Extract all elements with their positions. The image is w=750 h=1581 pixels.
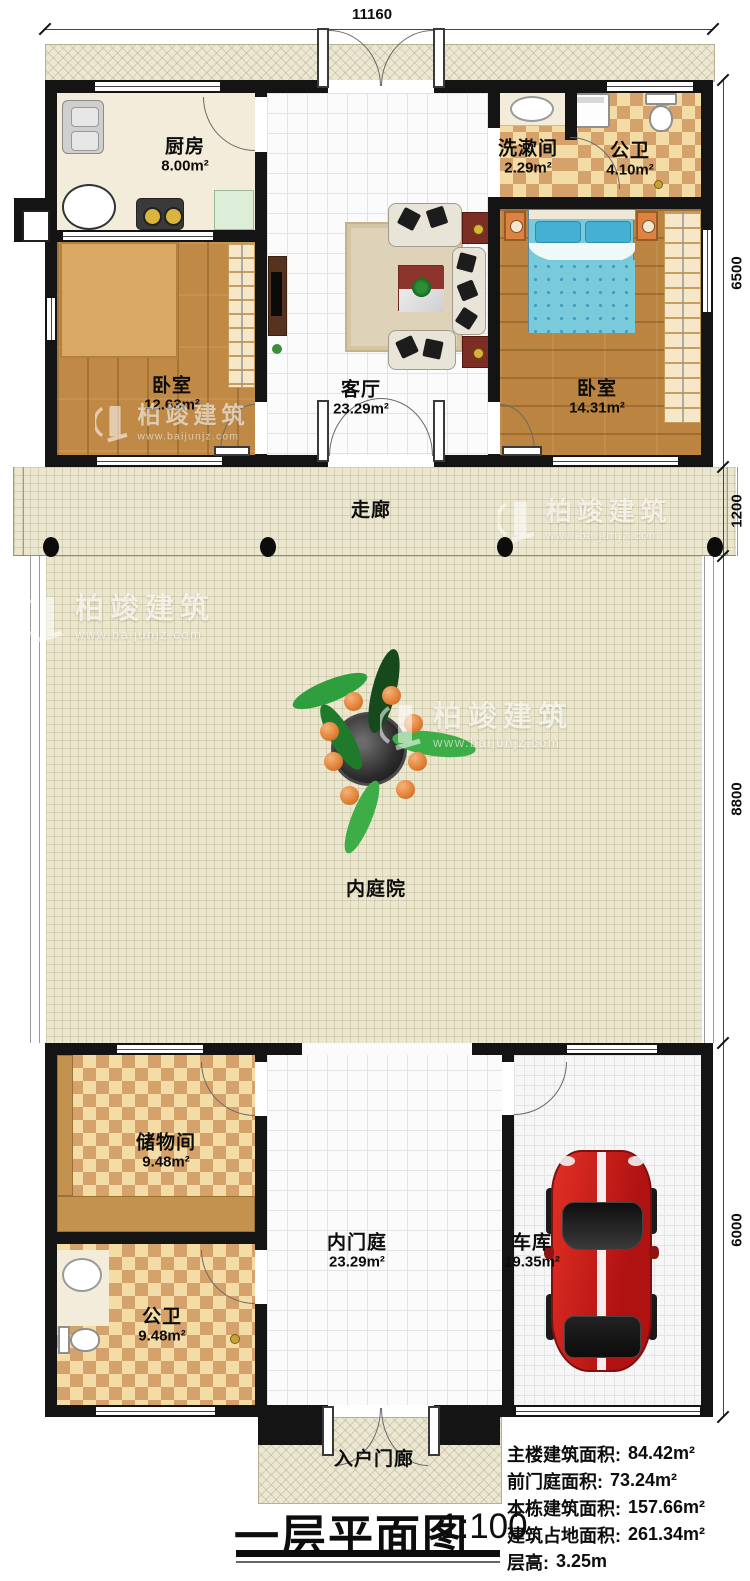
floor-plan-canvas: 11160 <box>0 0 750 1581</box>
room-area: 2.29m² <box>498 159 558 176</box>
room-name: 车库 <box>504 1233 560 1253</box>
exterior-stub-wall <box>14 198 22 242</box>
plant-fruit <box>320 722 339 741</box>
window <box>97 455 222 467</box>
title-underline-thick <box>236 1550 500 1557</box>
wall <box>565 93 577 140</box>
column <box>43 537 59 557</box>
lamp <box>510 220 523 233</box>
exterior-box <box>22 210 50 242</box>
stat-line: 前门庭面积: 73.24m² <box>507 1467 705 1494</box>
room-name: 内门庭 <box>327 1233 387 1253</box>
car-rear-window <box>564 1316 641 1358</box>
door-leaf <box>433 28 445 88</box>
bath-sink <box>62 1258 102 1292</box>
room-label-living: 客厅 23.29m² <box>333 380 389 417</box>
wall <box>701 1043 713 1417</box>
stat-value: 3.25m <box>556 1551 607 1572</box>
corridor-edge <box>13 467 24 556</box>
door-opening <box>488 402 500 454</box>
room-area: 9.48m² <box>136 1153 196 1170</box>
room-area: 23.29m² <box>327 1253 387 1270</box>
door-opening <box>328 455 434 467</box>
room-name: 客厅 <box>333 380 389 400</box>
interior-window <box>63 230 213 242</box>
sofa-pillow <box>422 338 443 359</box>
coffee-table <box>398 265 443 311</box>
bed-pillow <box>535 221 581 243</box>
car-windshield <box>562 1202 643 1250</box>
stat-line: 层高: 3.25m <box>507 1548 705 1575</box>
stat-line: 本栋建筑面积: 157.66m² <box>507 1494 705 1521</box>
washing-machine <box>572 93 610 128</box>
room-area: 4.10m² <box>606 161 654 178</box>
door-opening <box>255 1062 267 1116</box>
toilet-top-bowl <box>649 105 673 132</box>
title-underline-thin <box>236 1561 500 1563</box>
plant-fruit <box>404 714 423 733</box>
dim-right-6500: 6500 <box>729 256 746 289</box>
dim-top-line <box>45 29 713 30</box>
plant-fruit <box>340 786 359 805</box>
door-leaf <box>502 446 542 456</box>
door-leaf <box>322 1406 334 1456</box>
burner <box>143 207 162 226</box>
car-mirror <box>649 1246 659 1259</box>
bed-single <box>60 242 178 358</box>
room-label-storage: 储物间 9.48m² <box>136 1133 196 1170</box>
column <box>260 537 276 557</box>
wardrobe-right <box>664 211 701 423</box>
stat-label: 本栋建筑面积: <box>507 1495 621 1521</box>
nightstand <box>504 211 526 241</box>
window <box>701 230 713 312</box>
door-arc <box>329 30 381 86</box>
side-table-dot <box>473 348 484 359</box>
door-opening <box>255 402 267 454</box>
toilet-top <box>645 93 677 105</box>
wardrobe-left <box>228 242 255 388</box>
room-name: 卧室 <box>144 376 200 396</box>
room-name: 厨房 <box>161 137 209 157</box>
storage-shelf-side <box>57 1055 73 1196</box>
floor-drain <box>230 1334 240 1344</box>
window <box>567 1043 657 1055</box>
stat-label: 主楼建筑面积: <box>507 1441 621 1467</box>
wall <box>45 1043 57 1417</box>
plant-fruit <box>408 752 427 771</box>
kitchen-sink <box>62 100 104 154</box>
window <box>607 80 693 93</box>
window <box>553 455 678 467</box>
toilet-bottom-tank <box>58 1326 70 1354</box>
room-area: 12.63m² <box>144 396 200 413</box>
washroom-sink <box>510 96 554 122</box>
room-label-inner-court: 内门庭 23.29m² <box>327 1233 387 1270</box>
door-leaf <box>214 446 250 456</box>
door-leaf <box>433 400 445 462</box>
stat-value: 157.66m² <box>628 1497 705 1518</box>
table-plant <box>412 278 431 297</box>
door-leaf <box>317 400 329 462</box>
door-leaf <box>317 28 329 88</box>
room-label-courtyard: 内庭院 <box>346 880 406 900</box>
room-area: 9.48m² <box>138 1327 186 1344</box>
corridor-line <box>14 555 736 556</box>
room-name: 入户门廊 <box>334 1450 414 1470</box>
window <box>95 80 220 93</box>
room-label-bedroom-right: 卧室 14.31m² <box>569 379 625 416</box>
room-area: 23.29m² <box>333 400 389 417</box>
stat-value: 84.42m² <box>628 1443 695 1464</box>
dim-right-8800: 8800 <box>729 782 746 815</box>
room-label-washroom: 洗漱间 2.29m² <box>498 139 558 176</box>
area-statistics: 主楼建筑面积: 84.42m² 前门庭面积: 73.24m² 本栋建筑面积: 1… <box>507 1440 705 1575</box>
room-name: 卧室 <box>569 379 625 399</box>
kitchen-table <box>62 184 116 230</box>
room-name: 走廊 <box>351 501 391 521</box>
door-opening <box>255 97 267 152</box>
car <box>551 1150 652 1372</box>
wall <box>488 197 713 209</box>
bed-blanket <box>529 260 635 333</box>
bed-headboard <box>529 210 635 220</box>
window <box>117 1043 203 1055</box>
car-headlight <box>559 1156 575 1166</box>
stat-value: 73.24m² <box>610 1470 677 1491</box>
room-area: 8.00m² <box>161 157 209 174</box>
room-label-garage: 车库 19.35m² <box>504 1233 560 1270</box>
sink-bowl <box>71 131 99 151</box>
room-name: 洗漱间 <box>498 139 558 159</box>
tv-screen <box>271 272 282 316</box>
porch-stub-wall <box>434 1417 500 1445</box>
stat-label: 前门庭面积: <box>507 1468 603 1494</box>
room-label-bath-top: 公卫 4.10m² <box>606 141 654 178</box>
column <box>497 537 513 557</box>
plant-fruit <box>382 686 401 705</box>
floor-inner-court <box>267 1050 502 1405</box>
burner <box>164 207 183 226</box>
stat-value: 261.34m² <box>628 1524 705 1545</box>
dim-right-line <box>723 80 724 1417</box>
kitchen-fridge <box>214 190 254 230</box>
door-opening <box>502 1062 514 1115</box>
plant-fruit <box>344 692 363 711</box>
door-opening <box>255 1250 267 1304</box>
room-name: 内庭院 <box>346 880 406 900</box>
stat-label: 层高: <box>507 1549 549 1575</box>
room-name: 储物间 <box>136 1133 196 1153</box>
wall <box>45 1232 267 1244</box>
room-label-bath-bottom: 公卫 9.48m² <box>138 1307 186 1344</box>
window <box>45 298 57 340</box>
room-area: 14.31m² <box>569 399 625 416</box>
sink-bowl <box>71 107 99 127</box>
car-headlight <box>628 1156 644 1166</box>
door-arc <box>381 30 433 86</box>
room-name: 公卫 <box>606 141 654 161</box>
stat-line: 主楼建筑面积: 84.42m² <box>507 1440 705 1467</box>
column <box>707 537 723 557</box>
dim-right-1200: 1200 <box>729 494 746 527</box>
stat-label: 建筑占地面积: <box>507 1522 621 1548</box>
room-label-corridor: 走廊 <box>351 501 391 521</box>
storage-shelf <box>57 1196 255 1232</box>
door-leaf <box>428 1406 440 1456</box>
courtyard-edge <box>704 556 714 1043</box>
window <box>96 1405 215 1417</box>
toilet-bottom-bowl <box>70 1328 100 1352</box>
room-label-porch: 入户门廊 <box>334 1450 414 1470</box>
room-label-bedroom-left: 卧室 12.63m² <box>144 376 200 413</box>
dim-top-label: 11160 <box>352 6 392 23</box>
sofa-top <box>388 203 462 247</box>
kitchen-stove <box>136 198 184 230</box>
wall <box>45 80 57 467</box>
lamp <box>642 220 655 233</box>
room-name: 公卫 <box>138 1307 186 1327</box>
room-label-kitchen: 厨房 8.00m² <box>161 137 209 174</box>
garage-door <box>516 1405 700 1417</box>
plant-small <box>272 344 282 354</box>
washer-panel <box>576 97 604 103</box>
dim-right-6000: 6000 <box>729 1213 746 1246</box>
floor-drain <box>654 180 663 189</box>
stat-line: 建筑占地面积: 261.34m² <box>507 1521 705 1548</box>
room-area: 19.35m² <box>504 1253 560 1270</box>
bed-pillow <box>585 221 631 243</box>
porch-stub-wall <box>258 1417 328 1445</box>
courtyard-opening <box>302 1043 472 1055</box>
plant-fruit <box>324 752 343 771</box>
bed-double <box>528 209 634 332</box>
side-table-dot <box>473 224 484 235</box>
courtyard-edge <box>30 556 40 1043</box>
nightstand <box>636 211 658 241</box>
plant-fruit <box>396 780 415 799</box>
